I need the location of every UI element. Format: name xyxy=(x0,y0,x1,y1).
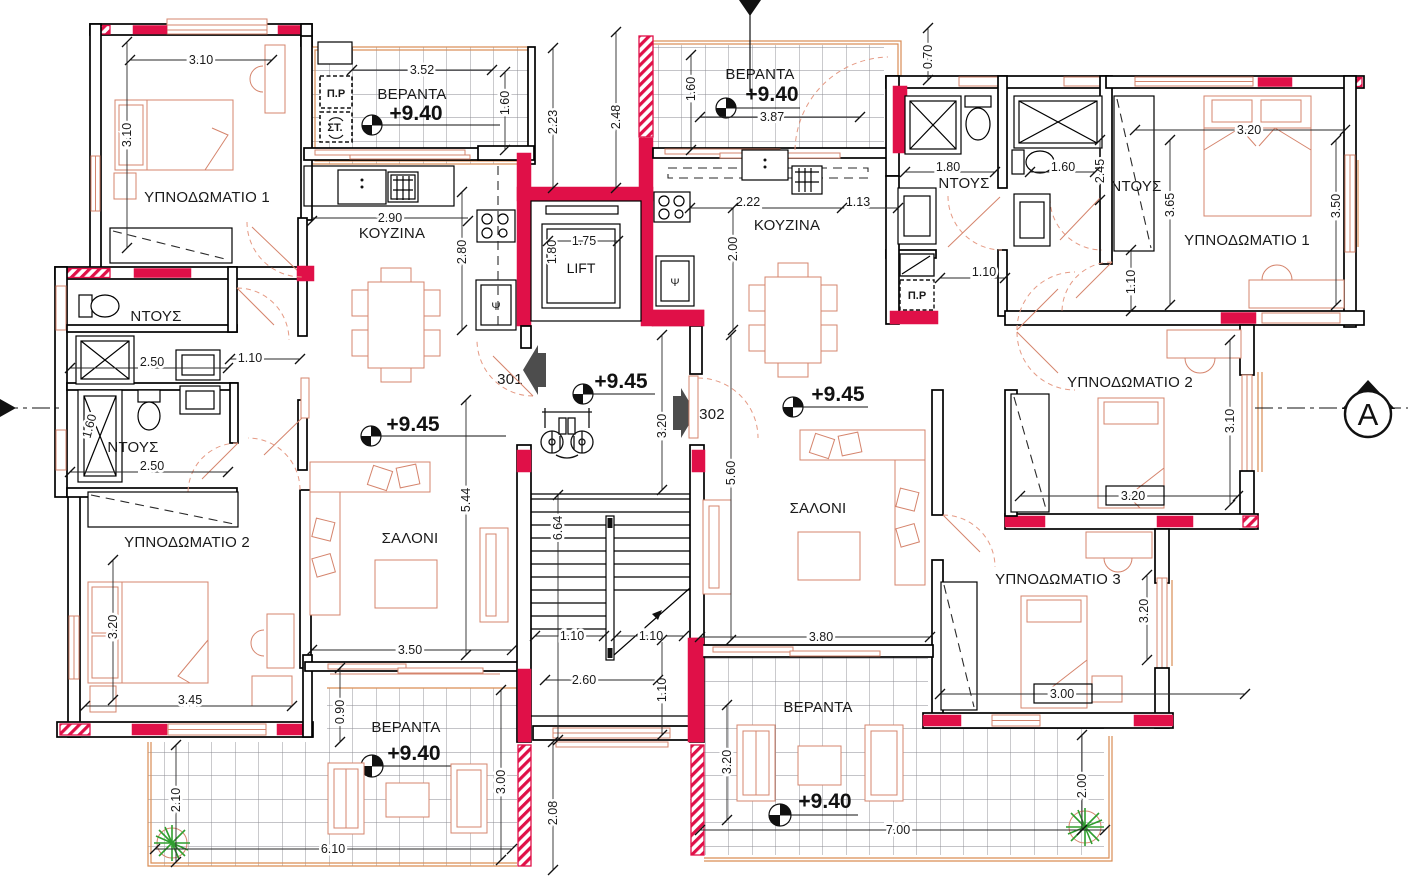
svg-text:3.45: 3.45 xyxy=(178,693,202,707)
svg-text:ΣΤ.: ΣΤ. xyxy=(327,122,342,134)
svg-text:3.10: 3.10 xyxy=(189,53,213,67)
svg-text:Π.Ρ: Π.Ρ xyxy=(327,88,345,100)
svg-text:0.90: 0.90 xyxy=(333,700,347,724)
svg-text:ΒΕΡΑΝΤΑ: ΒΕΡΑΝΤΑ xyxy=(783,699,852,716)
svg-text:3.20: 3.20 xyxy=(106,615,120,639)
svg-text:1.10: 1.10 xyxy=(1124,270,1138,294)
svg-text:Ψ: Ψ xyxy=(491,301,500,313)
svg-text:3.50: 3.50 xyxy=(1329,194,1343,218)
svg-text:ΥΠΝΟΔΩΜΑΤΙΟ 2: ΥΠΝΟΔΩΜΑΤΙΟ 2 xyxy=(1067,374,1193,391)
svg-text:1.75: 1.75 xyxy=(572,234,596,248)
svg-text:1.80: 1.80 xyxy=(545,240,559,264)
svg-text:1.80: 1.80 xyxy=(936,160,960,174)
svg-text:2.22: 2.22 xyxy=(736,195,760,209)
svg-text:A: A xyxy=(1358,397,1379,432)
svg-text:7.00: 7.00 xyxy=(886,823,910,837)
svg-text:2.50: 2.50 xyxy=(140,459,164,473)
svg-text:0.70: 0.70 xyxy=(921,45,935,69)
svg-text:2.50: 2.50 xyxy=(140,355,164,369)
svg-text:2.00: 2.00 xyxy=(726,237,740,261)
svg-text:2.23: 2.23 xyxy=(546,110,560,134)
svg-text:+9.40: +9.40 xyxy=(389,102,442,125)
svg-text:3.20: 3.20 xyxy=(655,414,669,438)
svg-text:ΥΠΝΟΔΩΜΑΤΙΟ 2: ΥΠΝΟΔΩΜΑΤΙΟ 2 xyxy=(124,534,250,551)
svg-text:3.52: 3.52 xyxy=(410,63,434,77)
svg-text:1.60: 1.60 xyxy=(684,77,698,101)
svg-text:2.00: 2.00 xyxy=(1075,774,1089,798)
svg-text:ΣΑΛΟΝΙ: ΣΑΛΟΝΙ xyxy=(790,500,847,517)
svg-text:2.60: 2.60 xyxy=(572,673,596,687)
svg-text:Π.Ρ: Π.Ρ xyxy=(908,290,926,302)
svg-text:ΚΟΥΖΙΝΑ: ΚΟΥΖΙΝΑ xyxy=(359,225,425,242)
svg-text:ΝΤΟΥΣ: ΝΤΟΥΣ xyxy=(938,175,989,192)
svg-text:3.65: 3.65 xyxy=(1163,193,1177,217)
svg-text:+9.40: +9.40 xyxy=(387,742,440,765)
svg-text:LIFT: LIFT xyxy=(567,260,596,276)
svg-text:ΒΕΡΑΝΤΑ: ΒΕΡΑΝΤΑ xyxy=(371,719,440,736)
svg-text:3.20: 3.20 xyxy=(720,750,734,774)
svg-text:2.08: 2.08 xyxy=(546,801,560,825)
svg-text:1.13: 1.13 xyxy=(846,195,870,209)
svg-text:3.20: 3.20 xyxy=(1121,489,1145,503)
svg-text:3.20: 3.20 xyxy=(1237,123,1261,137)
svg-text:2.10: 2.10 xyxy=(169,788,183,812)
svg-text:5.60: 5.60 xyxy=(724,461,738,485)
svg-text:2.80: 2.80 xyxy=(455,240,469,264)
svg-text:ΝΤΟΥΣ: ΝΤΟΥΣ xyxy=(130,308,181,325)
svg-text:3.00: 3.00 xyxy=(1050,687,1074,701)
svg-text:302: 302 xyxy=(699,406,725,423)
svg-text:3.10: 3.10 xyxy=(120,123,134,147)
svg-text:Ψ: Ψ xyxy=(670,277,679,289)
svg-text:2.48: 2.48 xyxy=(609,105,623,129)
svg-text:ΝΤΟΥΣ: ΝΤΟΥΣ xyxy=(107,439,158,456)
svg-text:ΥΠΝΟΔΩΜΑΤΙΟ 1: ΥΠΝΟΔΩΜΑΤΙΟ 1 xyxy=(1184,232,1310,249)
svg-text:ΣΑΛΟΝΙ: ΣΑΛΟΝΙ xyxy=(382,530,439,547)
svg-text:2.90: 2.90 xyxy=(378,211,402,225)
svg-text:+9.45: +9.45 xyxy=(811,383,864,406)
svg-text:1.10: 1.10 xyxy=(639,629,663,643)
svg-text:3.50: 3.50 xyxy=(398,643,422,657)
svg-text:+9.45: +9.45 xyxy=(386,413,439,436)
svg-text:1.10: 1.10 xyxy=(560,629,584,643)
svg-text:ΥΠΝΟΔΩΜΑΤΙΟ 3: ΥΠΝΟΔΩΜΑΤΙΟ 3 xyxy=(995,571,1121,588)
svg-text:ΝΤΟΥΣ: ΝΤΟΥΣ xyxy=(1110,178,1161,195)
svg-text:+9.40: +9.40 xyxy=(745,83,798,106)
svg-text:1.60: 1.60 xyxy=(498,91,512,115)
svg-text:+9.40: +9.40 xyxy=(798,790,851,813)
svg-text:1.10: 1.10 xyxy=(238,351,262,365)
svg-text:3.10: 3.10 xyxy=(1223,409,1237,433)
svg-text:+9.45: +9.45 xyxy=(594,370,647,393)
svg-text:3.20: 3.20 xyxy=(1137,599,1151,623)
svg-text:ΥΠΝΟΔΩΜΑΤΙΟ 1: ΥΠΝΟΔΩΜΑΤΙΟ 1 xyxy=(144,189,270,206)
svg-text:ΚΟΥΖΙΝΑ: ΚΟΥΖΙΝΑ xyxy=(754,217,820,234)
svg-text:6.10: 6.10 xyxy=(321,842,345,856)
svg-text:ΒΕΡΑΝΤΑ: ΒΕΡΑΝΤΑ xyxy=(377,86,446,103)
svg-text:6.64: 6.64 xyxy=(551,516,565,540)
svg-text:3.80: 3.80 xyxy=(809,630,833,644)
svg-text:3.00: 3.00 xyxy=(494,770,508,794)
svg-text:1.10: 1.10 xyxy=(972,265,996,279)
svg-text:ΒΕΡΑΝΤΑ: ΒΕΡΑΝΤΑ xyxy=(725,66,794,83)
svg-text:1.60: 1.60 xyxy=(1051,160,1075,174)
svg-text:5.44: 5.44 xyxy=(459,488,473,512)
svg-text:3.87: 3.87 xyxy=(760,110,784,124)
